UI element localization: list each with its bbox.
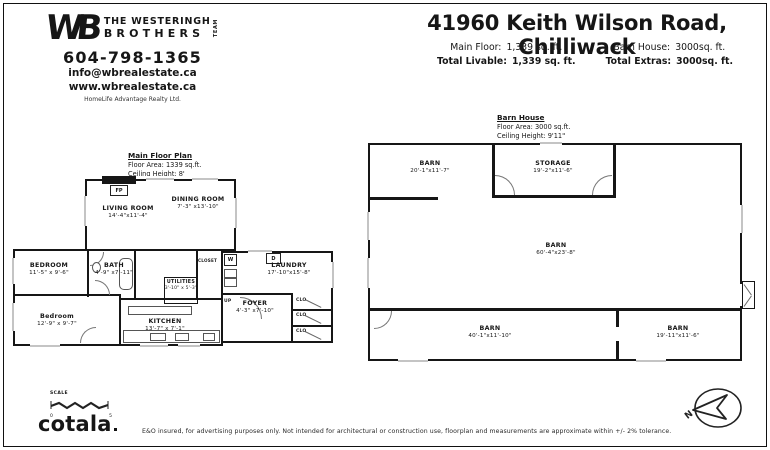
brand-phone: 604-798-1365 <box>30 48 235 67</box>
window <box>192 176 218 182</box>
stat-label: Total Livable: <box>437 55 507 69</box>
room-dining: DINING ROOM 7'-3" x13'-10" <box>158 196 238 211</box>
wall-partition <box>291 293 293 343</box>
barn-plan-title: Barn House <box>497 113 570 123</box>
brand-email: info@wbrealestate.ca <box>30 67 235 81</box>
wall-closet-shelf <box>291 325 333 327</box>
brand-wordmark: THE WESTERINGH BROTHERS <box>104 16 211 40</box>
brand-website: www.wbrealestate.ca <box>30 81 235 95</box>
window <box>140 343 168 349</box>
wall-partition <box>616 341 619 359</box>
wall-closet-shelf <box>291 309 333 311</box>
stats-block: Main Floor: 1,339 sq. ft. Total Livable:… <box>420 41 750 70</box>
cotala-logo: cotala <box>38 412 117 436</box>
window <box>398 358 428 364</box>
room-bath: BATH 4'-9" x7'-11" <box>90 262 138 277</box>
room-kitchen: KITCHEN 13'-7" x 7'-1" <box>128 318 202 333</box>
wall-partition <box>368 308 742 311</box>
room-bedroom1: BEDROOM 11'-5" x 9'-6" <box>16 262 82 277</box>
washer-icon: W <box>224 254 237 266</box>
wall-partition <box>613 143 616 198</box>
wall-partition <box>87 249 89 297</box>
stat-value: 1,339 sq. ft. <box>512 55 576 69</box>
window <box>739 205 745 233</box>
window <box>365 258 371 288</box>
fireplace-mantel <box>102 176 136 184</box>
compass-icon: N <box>682 381 748 435</box>
stove-icon <box>150 333 166 341</box>
room-barn-sw: BARN 40'-1"x11'-10" <box>448 325 532 340</box>
brand-block: WB THE WESTERINGH BROTHERS TEAM 604-798-… <box>30 11 235 103</box>
wall-partition <box>616 311 619 327</box>
main-plan-title: Main Floor Plan <box>128 151 201 161</box>
floorplan-flyer: WB THE WESTERINGH BROTHERS TEAM 604-798-… <box>0 0 770 450</box>
room-utilities: UTILITIES 3'-10" x 5'-3" <box>163 280 199 292</box>
stat-value: 3000sq. ft. <box>675 41 725 55</box>
up-label: UP <box>224 299 231 304</box>
stats-col-barn: Barn House: 3000sq. ft. Total Extras: 30… <box>606 41 733 70</box>
sink-icon <box>175 333 189 341</box>
room-barn-se: BARN 19'-11"x11'-6" <box>638 325 718 340</box>
wall-partition <box>368 197 438 200</box>
room-storage: STORAGE 19'-2"x11'-6" <box>514 160 592 175</box>
wall-partition <box>119 294 121 346</box>
main-plan-area: Floor Area: 1339 sq.ft. <box>128 161 201 170</box>
wall-partition <box>492 195 616 198</box>
window <box>636 358 666 364</box>
stat-label: Main Floor: <box>450 41 501 55</box>
clo-label: CLO <box>296 298 306 303</box>
window <box>330 262 336 288</box>
stat-total-livable: Total Livable: 1,339 sq. ft. <box>437 55 576 69</box>
stat-value: 3000sq. ft. <box>676 55 733 69</box>
stat-value: 1,339 sq. ft. <box>506 41 562 55</box>
brand-brokerage: HomeLife Advantage Realty Ltd. <box>30 96 235 103</box>
wb-monogram: WB <box>45 11 98 45</box>
fireplace-icon: FP <box>110 185 128 196</box>
disclaimer-text: E&O insured, for advertising purposes on… <box>142 428 722 435</box>
cotala-dot <box>114 428 117 431</box>
scale-ruler-icon <box>50 399 110 411</box>
window <box>10 303 16 331</box>
clo-label: CLO <box>296 329 306 334</box>
brand-team-label: TEAM <box>213 19 219 37</box>
clo-label: CLO <box>296 313 306 318</box>
laundry-tub <box>224 278 237 287</box>
scale-label: SCALE <box>50 391 112 396</box>
stat-main-floor: Main Floor: 1,339 sq. ft. <box>437 41 576 55</box>
brand-line1: THE WESTERINGH <box>104 16 211 27</box>
barn-plan-title-block: Barn House Floor Area: 3000 sq.ft. Ceili… <box>497 113 570 142</box>
fridge-icon <box>203 333 215 341</box>
stats-col-main: Main Floor: 1,339 sq. ft. Total Livable:… <box>437 41 576 70</box>
brand-logo: WB THE WESTERINGH BROTHERS TEAM <box>30 11 235 45</box>
room-bedroom2: Bedroom 12'-9" x 9'-7" <box>20 313 94 328</box>
window <box>30 343 60 349</box>
laundry-tub <box>224 269 237 278</box>
brand-line2: BROTHERS <box>104 27 211 40</box>
room-barn-main: BARN 60'-4"x23'-8" <box>514 242 598 257</box>
room-barn-nw: BARN 20'-1"x11'-7" <box>392 160 468 175</box>
stat-label: Total Extras: <box>606 55 672 69</box>
kitchen-island <box>128 306 192 315</box>
stat-total-extras: Total Extras: 3000sq. ft. <box>606 55 733 69</box>
window <box>365 212 371 240</box>
wall-partition <box>221 293 293 295</box>
window <box>178 343 200 349</box>
window <box>540 140 562 146</box>
window <box>146 176 174 182</box>
barn-plan-area: Floor Area: 3000 sq.ft. <box>497 123 570 132</box>
closet-label: CLOSET <box>198 258 217 263</box>
room-laundry: LAUNDRY 17'-10"x15'-8" <box>252 262 326 277</box>
stat-barn-house: Barn House: 3000sq. ft. <box>606 41 733 55</box>
stat-label: Barn House: <box>613 41 670 55</box>
room-foyer: FOYER 4'-3" x7'-10" <box>226 300 284 315</box>
